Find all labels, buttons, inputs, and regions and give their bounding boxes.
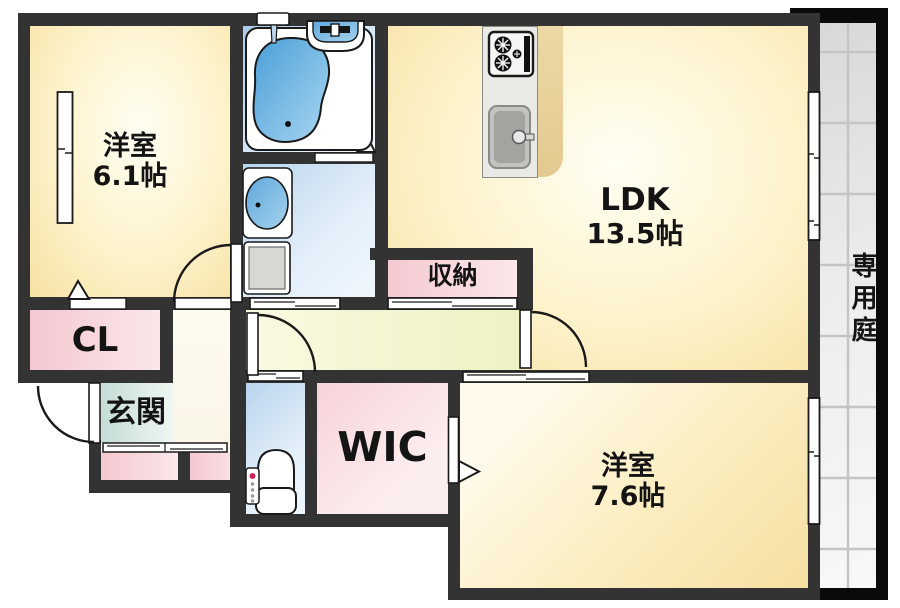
- front-door: [38, 383, 100, 443]
- outer-border-right: [876, 8, 888, 600]
- wall-bedroom2-bottom: [448, 588, 820, 600]
- kitchen-counter: [482, 26, 538, 178]
- label-bedroom2: 洋室 7.6帖: [528, 452, 728, 512]
- wall-closet-bottom: [18, 370, 173, 383]
- wall-storage-right: [517, 248, 533, 310]
- wall-bath-divider: [230, 152, 388, 164]
- label-entrance: 玄関: [98, 396, 174, 430]
- wall-corridor-top: [230, 297, 533, 310]
- room-washroom: [243, 164, 375, 297]
- room-corridor: [246, 310, 520, 370]
- label-bedroom1: 洋室 6.1帖: [30, 132, 230, 192]
- bedroom1-size: 6.1帖: [93, 162, 168, 192]
- ldk-size: 13.5帖: [586, 218, 683, 249]
- wall-storage-top: [370, 248, 533, 260]
- room-toilet: [246, 383, 305, 514]
- wall-top: [18, 13, 820, 26]
- ldk-name: LDK: [600, 183, 670, 218]
- wall-closet-right: [160, 310, 173, 370]
- entrance-name: 玄関: [106, 396, 166, 430]
- wall-right: [808, 13, 820, 600]
- storage-name: 収納: [427, 262, 477, 290]
- label-ldk: LDK 13.5帖: [535, 183, 735, 249]
- label-garden: 専用庭: [820, 235, 876, 365]
- wall-hall-right: [230, 310, 246, 527]
- kitchen-counter-bar: [538, 26, 563, 177]
- bedroom1-name: 洋室: [103, 132, 157, 162]
- room-bathroom: [243, 26, 375, 152]
- wall-shoe-divider: [178, 452, 190, 480]
- wall-toilet-wic: [305, 382, 317, 514]
- label-storage: 収納: [388, 262, 517, 290]
- wall-bath-right: [375, 13, 388, 310]
- garden-name: 専用庭: [847, 252, 876, 348]
- floor-plan: 洋室 6.1帖 LDK 13.5帖 収納 CL 玄関 WIC 洋室 7.6帖 専…: [0, 0, 900, 608]
- bedroom2-size: 7.6帖: [591, 482, 666, 512]
- wall-entrance-bottom: [89, 480, 246, 493]
- bedroom2-name: 洋室: [601, 452, 655, 482]
- wall-bedroom2-left: [448, 370, 460, 600]
- wall-wic-bottom: [230, 514, 460, 527]
- label-closet: CL: [30, 321, 160, 359]
- label-wic: WIC: [317, 425, 448, 471]
- outer-border-bottom: [808, 588, 888, 600]
- wall-bedroom1-bottom: [18, 297, 230, 310]
- wic-name: WIC: [337, 425, 428, 471]
- closet-name: CL: [72, 321, 119, 359]
- wall-corridor-bottom: [230, 370, 820, 383]
- shoe-cabinet-left: [101, 452, 178, 480]
- wall-left: [18, 13, 30, 383]
